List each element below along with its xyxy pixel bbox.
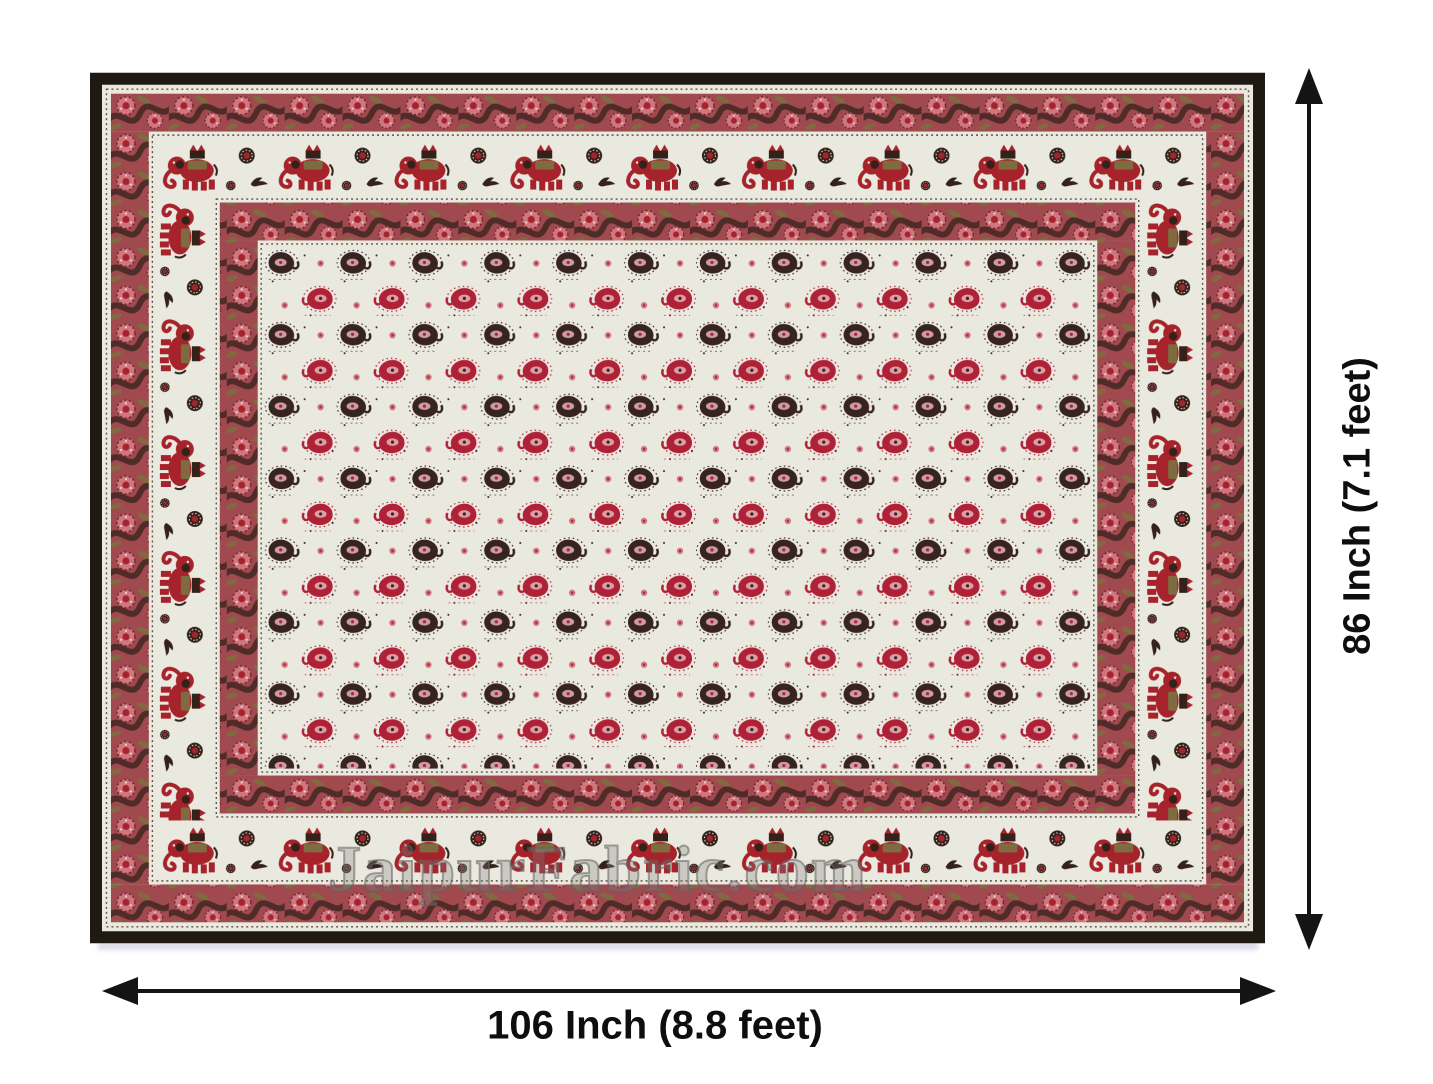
paisley-field — [265, 247, 1091, 768]
width-dimension-label: 106 Inch (8.8 feet) — [487, 1004, 823, 1049]
bedsheet-photo: JaipurFabric.com — [90, 72, 1265, 944]
bedsheet-print — [90, 72, 1265, 944]
product-photo-canvas: JaipurFabric.com 106 Inch (8.8 feet) 86 … — [0, 0, 1433, 1084]
width-arrow-icon — [102, 977, 1276, 1005]
height-arrow-icon — [1295, 68, 1323, 950]
watermark: JaipurFabric.com — [328, 832, 868, 908]
height-dimension-label: 86 Inch (7.1 feet) — [1337, 357, 1380, 655]
